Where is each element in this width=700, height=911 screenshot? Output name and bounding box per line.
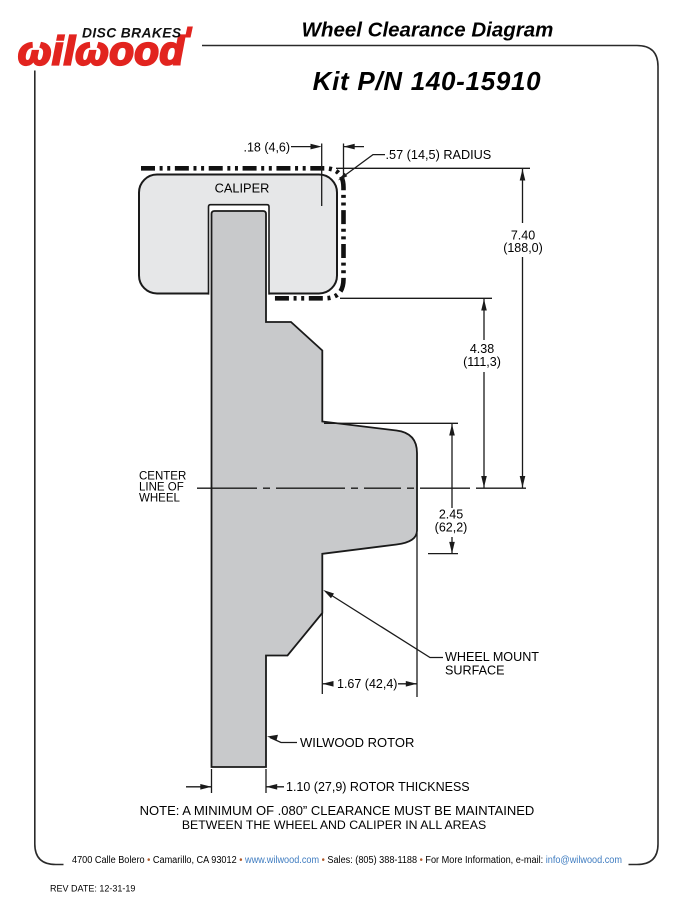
svg-text:1.10 (27,9) ROTOR THICKNESS: 1.10 (27,9) ROTOR THICKNESS bbox=[286, 780, 470, 794]
svg-text:NOTE: A MINIMUM OF .080” CLEAR: NOTE: A MINIMUM OF .080” CLEARANCE MUST … bbox=[140, 803, 535, 818]
svg-text:WILWOOD ROTOR: WILWOOD ROTOR bbox=[300, 735, 414, 750]
svg-text:(62,2): (62,2) bbox=[435, 521, 468, 535]
svg-text:WHEEL: WHEEL bbox=[139, 493, 181, 505]
svg-text:SURFACE: SURFACE bbox=[445, 664, 504, 678]
svg-text:.57 (14,5) RADIUS: .57 (14,5) RADIUS bbox=[386, 148, 492, 162]
svg-text:(188,0): (188,0) bbox=[503, 241, 543, 255]
svg-text:DISC BRAKES: DISC BRAKES bbox=[82, 26, 182, 41]
svg-text:(111,3): (111,3) bbox=[463, 355, 501, 369]
svg-text:Kit P/N 140-15910: Kit P/N 140-15910 bbox=[313, 66, 542, 96]
svg-text:.18 (4,6): .18 (4,6) bbox=[244, 140, 291, 154]
svg-text:REV DATE: 12-31-19: REV DATE: 12-31-19 bbox=[50, 884, 135, 894]
svg-text:2.45: 2.45 bbox=[439, 508, 463, 522]
svg-text:BETWEEN THE WHEEL AND CALIPER: BETWEEN THE WHEEL AND CALIPER IN ALL ARE… bbox=[182, 818, 486, 832]
svg-text:4700 Calle Bolero • Camarillo,: 4700 Calle Bolero • Camarillo, CA 93012 … bbox=[72, 855, 622, 866]
svg-text:CALIPER: CALIPER bbox=[215, 181, 270, 196]
svg-text:WHEEL MOUNT: WHEEL MOUNT bbox=[445, 650, 539, 664]
svg-text:1.67 (42,4): 1.67 (42,4) bbox=[337, 677, 397, 691]
svg-text:Wheel Clearance Diagram: Wheel Clearance Diagram bbox=[302, 19, 554, 42]
svg-text:4.38: 4.38 bbox=[470, 342, 494, 356]
